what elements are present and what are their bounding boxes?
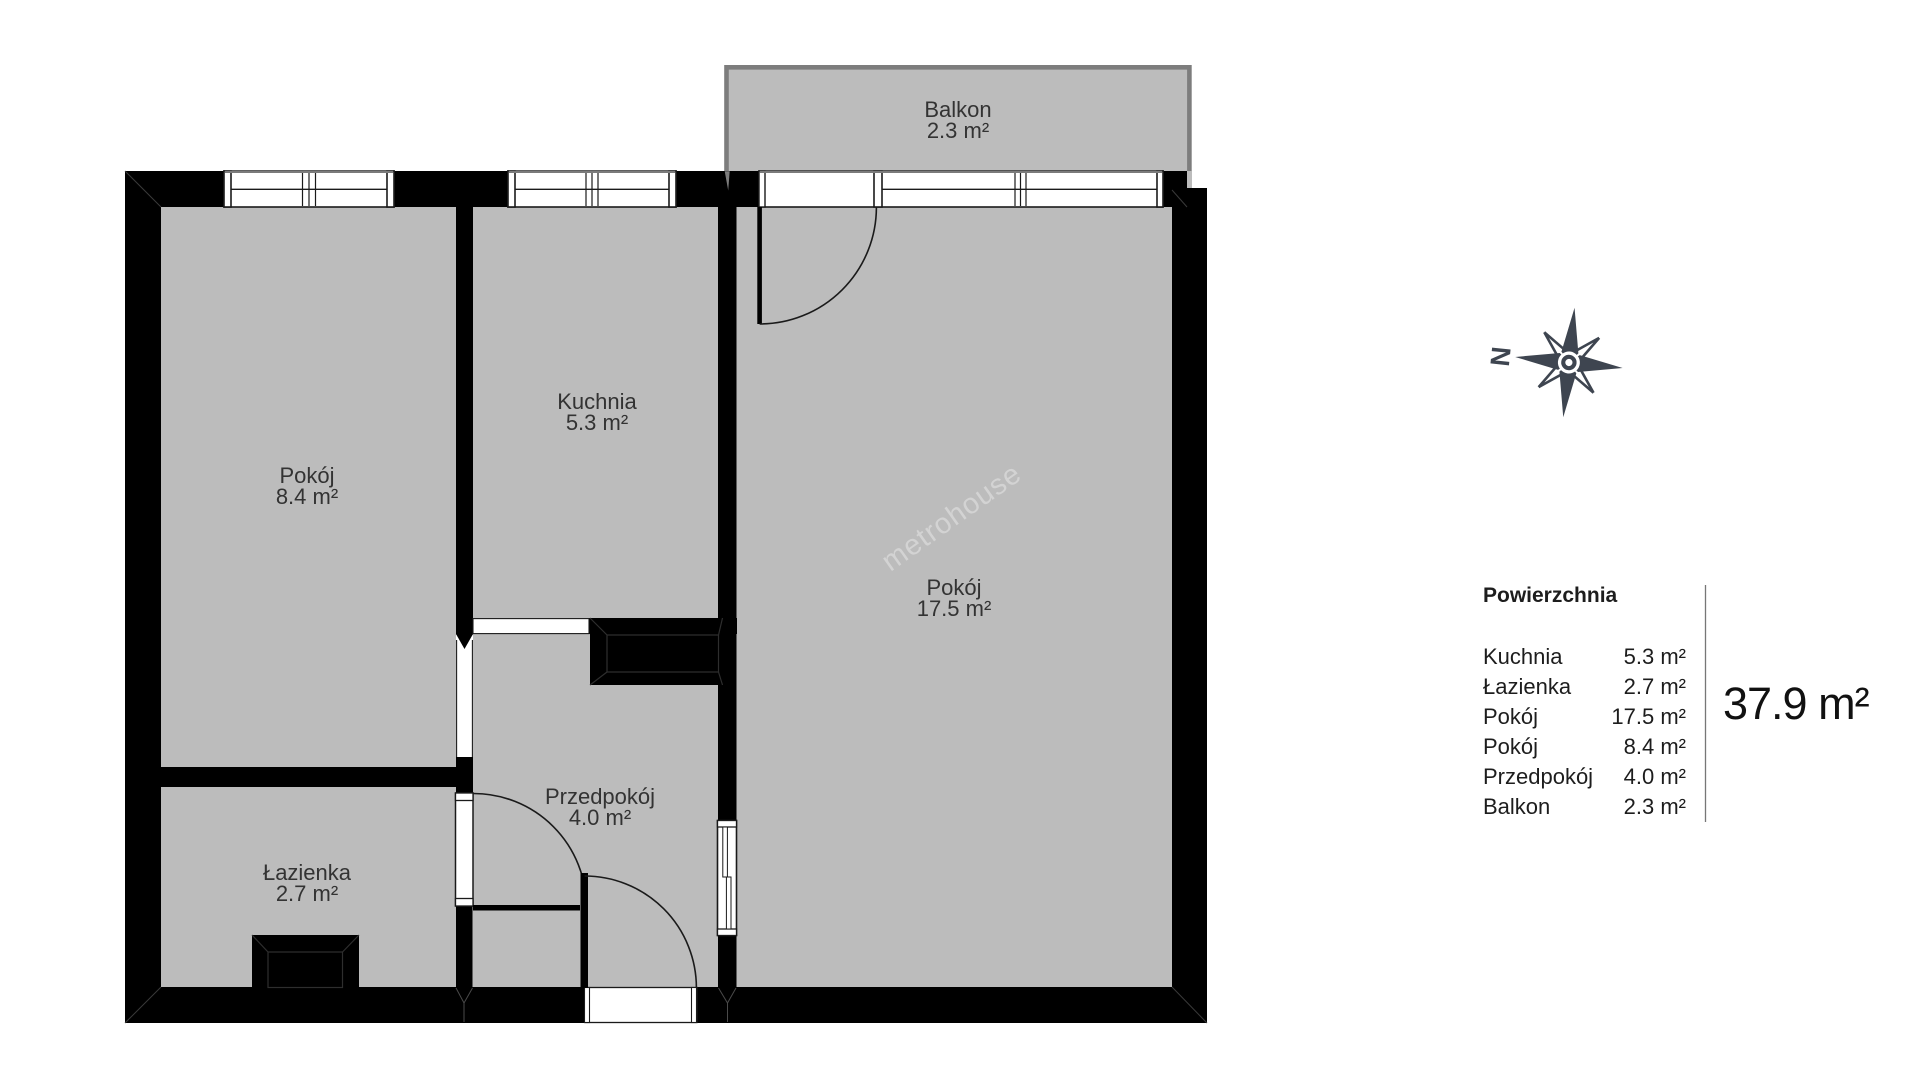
svg-text:2.7 m²: 2.7 m² <box>276 881 338 906</box>
svg-text:8.4 m²: 8.4 m² <box>1624 734 1686 759</box>
svg-text:8.4 m²: 8.4 m² <box>276 484 338 509</box>
svg-text:Łazienka: Łazienka <box>1483 674 1572 699</box>
svg-text:Powierzchnia: Powierzchnia <box>1483 584 1618 607</box>
svg-text:Pokój: Pokój <box>1483 734 1538 759</box>
svg-text:4.0 m²: 4.0 m² <box>1624 764 1686 789</box>
svg-text:4.0 m²: 4.0 m² <box>569 805 631 830</box>
svg-text:Przedpokój: Przedpokój <box>1483 764 1593 789</box>
svg-text:Balkon: Balkon <box>1483 794 1550 819</box>
svg-text:17.5 m²: 17.5 m² <box>917 596 992 621</box>
svg-text:Kuchnia: Kuchnia <box>1483 644 1563 669</box>
svg-text:2.3 m²: 2.3 m² <box>1624 794 1686 819</box>
svg-text:2.7 m²: 2.7 m² <box>1624 674 1686 699</box>
svg-text:2.3 m²: 2.3 m² <box>927 118 989 143</box>
svg-text:N: N <box>1485 345 1517 367</box>
svg-text:5.3 m²: 5.3 m² <box>1624 644 1686 669</box>
svg-text:Pokój: Pokój <box>1483 704 1538 729</box>
svg-text:17.5 m²: 17.5 m² <box>1611 704 1686 729</box>
svg-text:37.9 m²: 37.9 m² <box>1723 678 1870 729</box>
svg-text:5.3 m²: 5.3 m² <box>566 410 628 435</box>
